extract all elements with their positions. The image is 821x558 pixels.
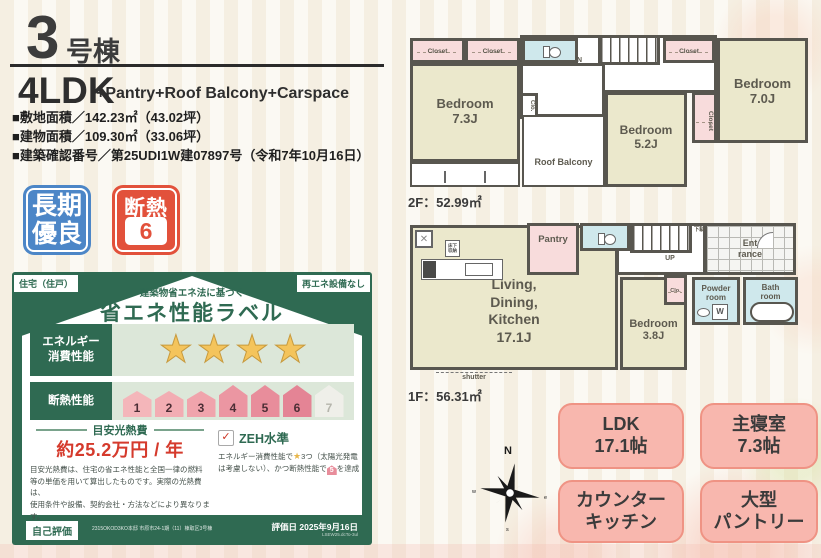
insulation-level-5: 5 — [251, 385, 280, 417]
powder-line: Powder — [695, 284, 737, 293]
closet-2f-2: Closet — [465, 38, 520, 63]
balcony-2f — [410, 162, 520, 187]
balcony-tick — [484, 171, 486, 183]
plan-features: +Pantry+Roof Balcony+Carspace — [96, 85, 349, 103]
spec-confirmation-number: ■建築確認番号／第25UDI1W建07897号（令和7年10月16日） — [12, 146, 370, 165]
room-size: 3.8J — [623, 330, 684, 342]
kitchen-sink — [465, 263, 493, 276]
ldk-line: 17.1J — [413, 329, 615, 347]
feature-line1: カウンター — [576, 490, 666, 512]
stairs-up-label: UP — [653, 255, 687, 262]
insulation-houses: 1 2 3 4 5 6 7 — [121, 385, 345, 417]
closet-label: Closet — [468, 48, 517, 55]
star-icon: ★ — [197, 331, 231, 369]
property-specs: ■敷地面積／142.23㎡（43.02坪） ■建物面積／109.30㎡（33.0… — [12, 108, 370, 165]
compass-north-label: N — [504, 445, 512, 457]
toilet-icon — [598, 232, 615, 244]
pantry-room: Pantry — [527, 223, 579, 275]
washing-machine: W — [712, 304, 728, 320]
zeh-note-part: 3つ（太陽光発電 — [301, 452, 358, 461]
feature-box-large-pantry: 大型 パントリー — [700, 480, 818, 543]
cost-header-line — [154, 429, 205, 431]
row-label-line2: 消費性能 — [42, 350, 100, 365]
entrance-line: rance — [707, 249, 793, 260]
long-term-excellence-badge: 長期 優良 — [23, 185, 91, 255]
long-term-badge-text: 長期 優良 — [23, 192, 91, 248]
range-hood-icon: ✕ — [415, 230, 433, 248]
spec-building-area: ■建物面積／109.30㎡（33.06坪） — [12, 127, 370, 146]
star-icon: ★ — [235, 331, 269, 369]
toilet-1f — [580, 223, 630, 251]
powder-room: Powder room W — [692, 277, 740, 325]
feature-box-counter-kitchen: カウンター キッチン — [558, 480, 684, 543]
sink-icon — [697, 308, 710, 317]
compass-west-label: w — [472, 489, 476, 495]
zeh-note-part: は考慮しない）、かつ断熱性能で — [218, 464, 327, 473]
floor-plan-2f: DN Closet Closet Closet Bedroom 7.3J Bed… — [408, 35, 810, 235]
compass-east-label: e — [544, 495, 547, 501]
zeh-house-icon: 5 — [327, 465, 337, 475]
room-name: Bedroom — [608, 123, 684, 137]
zeh-row: ✓ ZEH水準 — [218, 428, 289, 447]
row-label-line1: エネルギー — [42, 335, 100, 350]
closet-2f-1: Closet — [410, 38, 465, 63]
zeh-note: エネルギー消費性能で★3つ（太陽光発電は考慮しない）、かつ断熱性能で5を達成 — [218, 449, 360, 475]
feature-line1: 主寝室 — [732, 414, 786, 436]
energy-performance-label: 住宅（住戸） 再エネ設備なし 建築物省エネ法に基づく 省エネ性能ラベル エネルギ… — [12, 272, 372, 545]
feature-line1: 大型 — [741, 490, 777, 512]
ldk-line: Dining, — [413, 294, 615, 312]
closet-2f-3: Closet — [663, 38, 715, 63]
compass: N w e s — [470, 445, 550, 545]
room-size: 7.0J — [720, 91, 805, 106]
cost-note-line: 目安光熱費は、住宅の省エネ性能と全国一律の燃料 — [30, 464, 212, 476]
bedroom-7-0: Bedroom 7.0J — [717, 38, 808, 143]
room-name: Bedroom — [720, 76, 805, 91]
flyer-canvas: 3 号棟 4LDK +Pantry+Roof Balcony+Carspace … — [0, 0, 821, 558]
feature-line1: LDK — [603, 414, 640, 436]
self-evaluation-tag: 自己評価 — [26, 521, 78, 540]
insulation-level-2: 2 — [155, 391, 184, 417]
floor2-area: 2F：52.99㎡ — [408, 192, 482, 211]
closet-label: Closet — [413, 48, 462, 55]
cost-header-line — [36, 429, 87, 431]
stairs-down — [598, 35, 660, 65]
bedroom-7-3: Bedroom 7.3J — [410, 63, 520, 162]
stairs-up — [630, 223, 692, 253]
insulation-row-label: 断熱性能 — [30, 382, 112, 420]
closet-2f-4: Closet — [692, 92, 717, 143]
insulation-level-3: 3 — [187, 391, 216, 417]
roof-balcony: Roof Balcony — [522, 115, 605, 187]
powder-line: room — [695, 293, 737, 302]
room-name: Bedroom — [623, 318, 684, 330]
bathtub-icon — [750, 302, 794, 322]
label-title: 省エネ性能ラベル — [12, 297, 372, 327]
title-divider — [10, 64, 384, 67]
building-number: 3 — [26, 8, 59, 68]
shutter-label: shutter — [436, 374, 512, 381]
room-name: Bedroom — [413, 96, 517, 111]
feature-box-master-bedroom: 主寝室 7.3帖 — [700, 403, 818, 469]
insulation-grade-badge: 断熱 6 — [112, 185, 180, 255]
cost-note-line: 使用条件や設備、契約会社・方法などにより異なります。 — [30, 499, 212, 522]
feature-line2: 7.3帖 — [737, 436, 780, 458]
toilet-icon — [543, 45, 560, 57]
closet-label: Clo. — [667, 288, 684, 294]
entrance: Ent rance — [704, 223, 796, 275]
entrance-line: Ent — [707, 238, 793, 249]
roof-balcony-label: Roof Balcony — [524, 157, 603, 167]
bath-line: Bath — [746, 283, 795, 292]
insulation-level-4: 4 — [219, 385, 248, 417]
insulation-level-7: 7 — [315, 385, 344, 417]
zeh-label: ZEH水準 — [239, 428, 289, 447]
stove-icon — [423, 261, 436, 278]
zeh-star-icon: ★ — [293, 451, 301, 461]
insulation-level-1: 1 — [123, 391, 152, 417]
badge-line2: 優良 — [32, 220, 82, 248]
insulation-badge-grade: 6 — [125, 217, 167, 245]
feature-line2: パントリー — [714, 512, 805, 534]
cost-note-line: 等の単価を用いて算出したものです。実際の光熱費は、 — [30, 476, 212, 499]
bedroom-5-2: Bedroom 5.2J — [605, 92, 687, 187]
closet-1f: Clo. — [664, 275, 687, 305]
insulation-scale: 1 2 3 4 5 6 7 — [112, 382, 354, 420]
bath-line: room — [746, 292, 795, 301]
evaluation-code: LSEW25.dcTo-3ul — [228, 532, 358, 537]
bath-room: Bath room — [743, 277, 798, 325]
floor-plan-1f: Living, Dining, Kitchen 17.1J ✕ 床下収納 Pan… — [408, 222, 810, 402]
floor1-area: 1F：56.31㎡ — [408, 386, 482, 405]
balcony-tick — [444, 171, 446, 183]
feature-box-ldk: LDK 17.1帖 — [558, 403, 684, 469]
cost-note: 目安光熱費は、住宅の省エネ性能と全国一律の燃料 等の単価を用いて算出したものです… — [30, 464, 212, 522]
feature-line2: キッチン — [585, 512, 657, 534]
cost-value: 約25.2万円 / 年 — [22, 436, 218, 462]
insulation-level-6: 6 — [283, 385, 312, 417]
energy-consumption-stars: ★ ★ ★ ★ — [112, 324, 354, 376]
star-icon: ★ — [273, 331, 307, 369]
pantry-label: Pantry — [530, 234, 576, 245]
ldk-line: Kitchen — [413, 311, 615, 329]
closet-label: Closet — [666, 48, 712, 55]
compass-south-label: s — [506, 527, 509, 533]
badge-line1: 長期 — [32, 192, 82, 220]
room-size: 5.2J — [608, 137, 684, 151]
zeh-note-part: を達成 — [337, 464, 360, 473]
room-size: 7.3J — [413, 111, 517, 126]
feature-line2: 17.1帖 — [594, 436, 647, 458]
spec-land-area: ■敷地面積／142.23㎡（43.02坪） — [12, 108, 370, 127]
shutter-line — [436, 372, 512, 373]
energy-consumption-row-label: エネルギー 消費性能 — [30, 324, 112, 376]
star-icon: ★ — [159, 331, 193, 369]
zeh-note-part: エネルギー消費性能で — [218, 452, 293, 461]
zeh-checkbox-icon: ✓ — [218, 430, 234, 446]
toilet-2f — [522, 38, 578, 63]
floor-storage: 床下収納 — [445, 240, 460, 257]
compass-rose-icon — [473, 456, 546, 529]
